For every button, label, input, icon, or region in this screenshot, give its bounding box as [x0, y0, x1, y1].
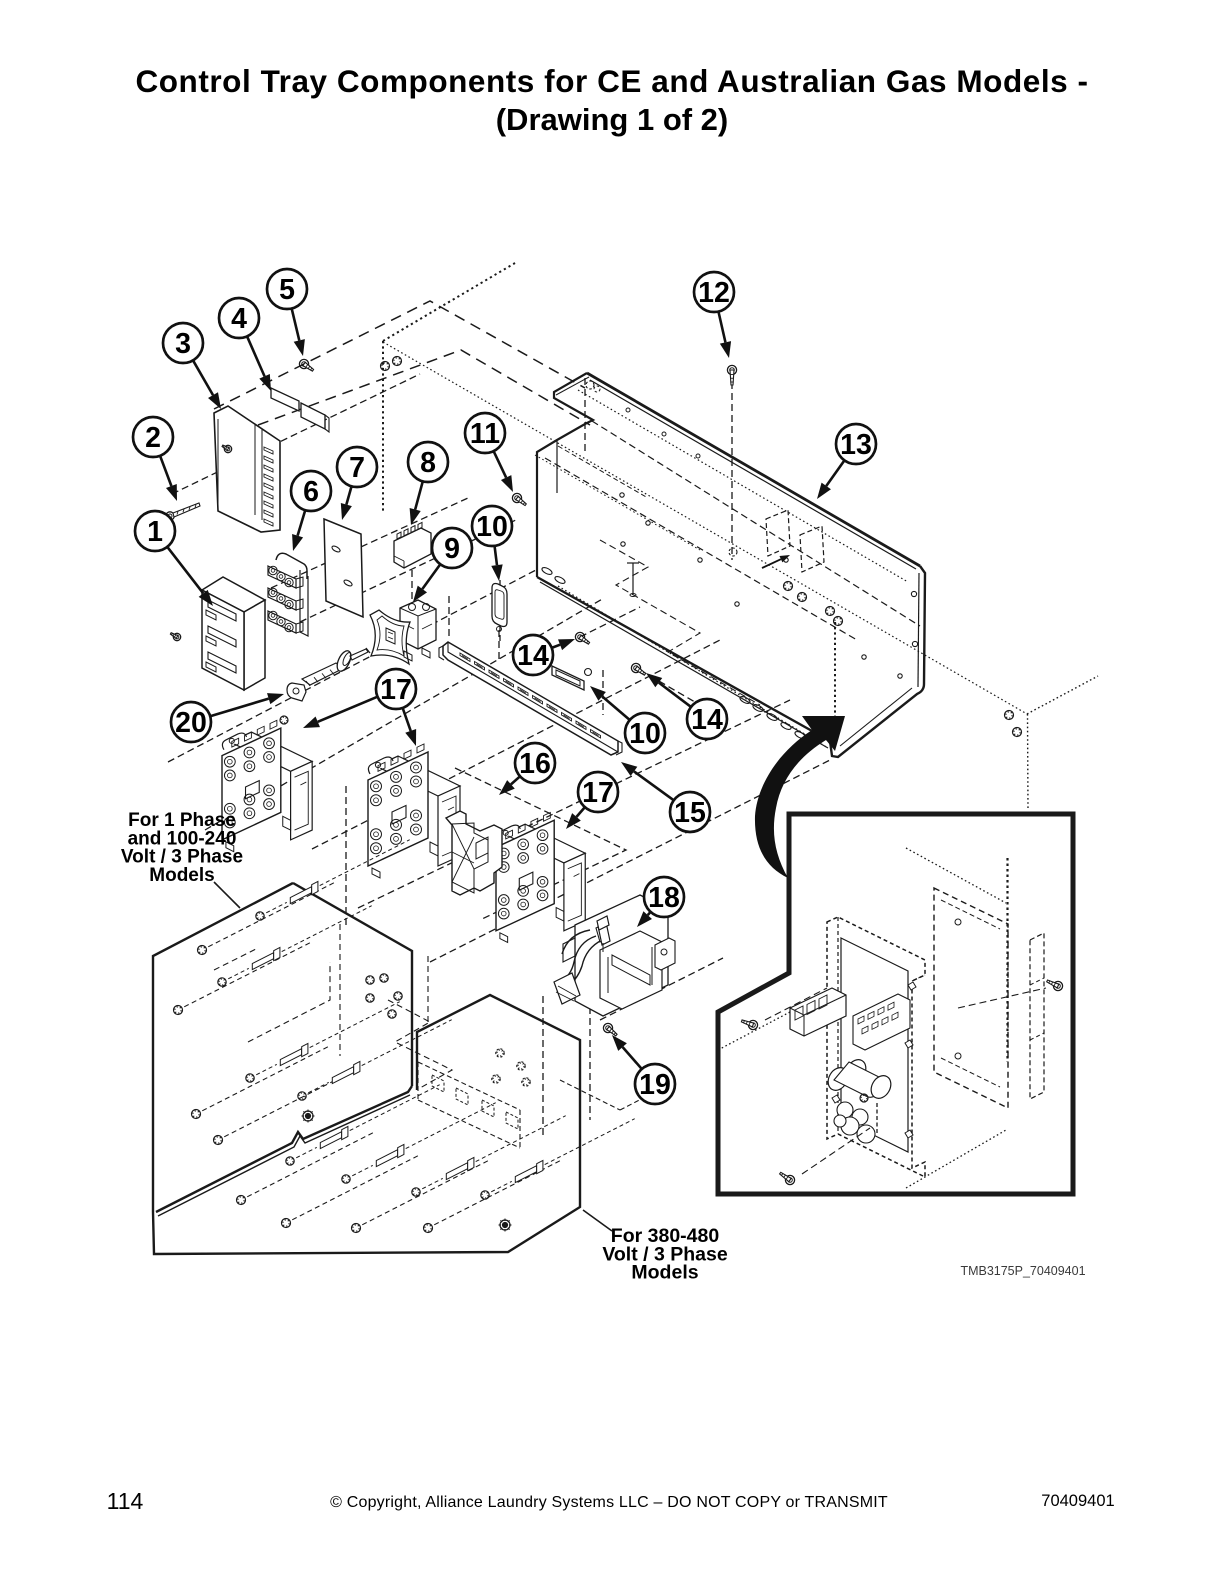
svg-text:7: 7 [349, 452, 365, 484]
svg-text:8: 8 [420, 447, 436, 479]
svg-text:TMB3175P_70409401: TMB3175P_70409401 [960, 1264, 1085, 1278]
svg-text:20: 20 [175, 707, 207, 739]
svg-text:5: 5 [279, 274, 295, 306]
svg-text:17: 17 [582, 777, 614, 809]
svg-text:114: 114 [107, 1488, 144, 1514]
svg-text:15: 15 [674, 797, 706, 829]
svg-text:17: 17 [380, 674, 412, 706]
svg-text:Models: Models [149, 865, 214, 886]
svg-text:1: 1 [147, 516, 163, 548]
svg-text:(Drawing 1 of 2): (Drawing 1 of 2) [496, 102, 729, 137]
svg-text:19: 19 [639, 1069, 671, 1101]
svg-text:Control Tray Components for CE: Control Tray Components for CE and Austr… [135, 63, 1088, 99]
svg-text:6: 6 [303, 476, 319, 508]
svg-text:70409401: 70409401 [1041, 1492, 1114, 1510]
svg-text:3: 3 [175, 328, 191, 360]
svg-text:12: 12 [698, 277, 730, 309]
svg-text:18: 18 [648, 882, 680, 914]
svg-text:9: 9 [444, 533, 460, 565]
svg-text:13: 13 [840, 429, 872, 461]
svg-text:14: 14 [691, 704, 723, 736]
svg-text:2: 2 [145, 422, 161, 454]
svg-text:16: 16 [519, 748, 551, 780]
svg-text:10: 10 [476, 511, 508, 543]
svg-text:4: 4 [231, 303, 247, 335]
svg-text:11: 11 [470, 418, 500, 450]
svg-text:© Copyright, Alliance Laundry: © Copyright, Alliance Laundry Systems LL… [330, 1494, 888, 1511]
svg-text:Models: Models [631, 1262, 698, 1284]
svg-text:10: 10 [629, 718, 661, 750]
svg-text:14: 14 [517, 640, 549, 672]
